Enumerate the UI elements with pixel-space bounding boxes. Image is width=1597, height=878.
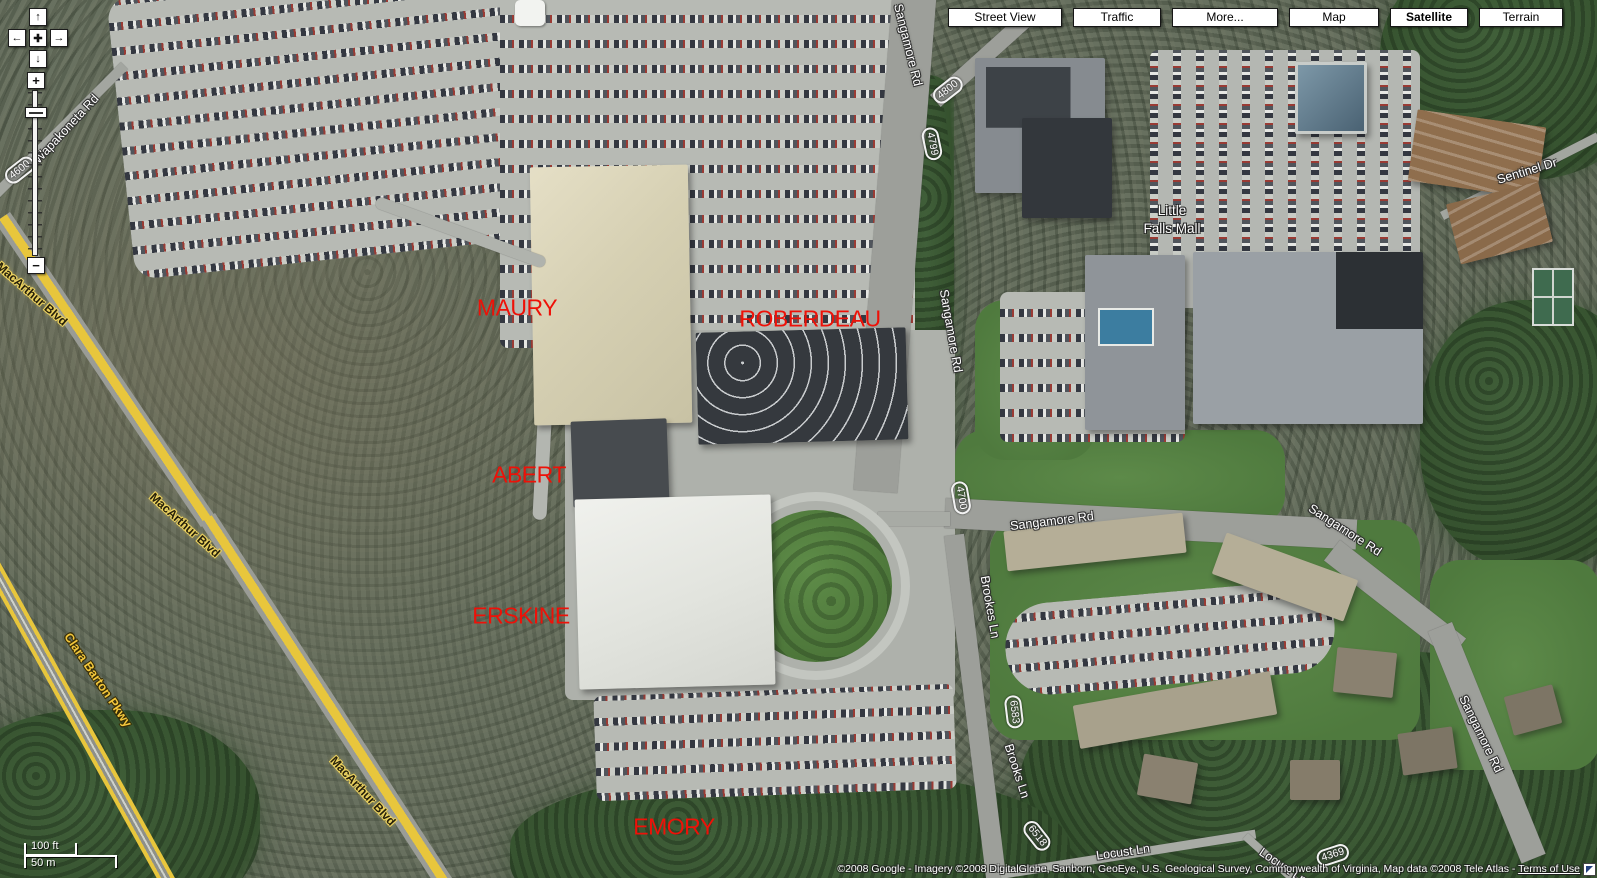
attribution: ©2008 Google - Imagery ©2008 DigitalGlob… (837, 863, 1580, 875)
building-dark-roof (696, 327, 909, 444)
map-type-toolbar: Street ViewTrafficMore...MapSatelliteTer… (948, 8, 1563, 27)
toolbar-button-terrain[interactable]: Terrain (1479, 8, 1563, 27)
building-glass (1295, 62, 1367, 134)
road-campus-entrance (878, 512, 950, 526)
zoom-out-button[interactable]: − (27, 257, 45, 274)
pan-left-button[interactable]: ← (8, 29, 26, 47)
copyright-text: ©2008 Google - Imagery ©2008 DigitalGlob… (837, 863, 1518, 875)
parking-lot-south (593, 684, 956, 801)
tennis-court (1532, 268, 1574, 326)
building-white (575, 494, 776, 689)
forest-patch (1420, 300, 1597, 570)
toolbar-button-more[interactable]: More... (1172, 8, 1278, 27)
toolbar-button-street-view[interactable]: Street View (948, 8, 1062, 27)
google-maps-satellite-view: Sangamore Rd48004799Sangamore Rd4700Sang… (0, 0, 1597, 878)
building-pool (1098, 308, 1154, 346)
zoom-in-button[interactable]: + (27, 72, 45, 89)
zoom-slider-handle[interactable] (25, 107, 47, 118)
scale-bar: 100 ft 50 m (24, 843, 124, 871)
toolbar-button-map[interactable]: Map (1289, 8, 1379, 27)
pan-right-button[interactable]: → (50, 29, 68, 47)
map-canvas[interactable]: Sangamore Rd48004799Sangamore Rd4700Sang… (0, 0, 1597, 878)
toolbar-button-satellite[interactable]: Satellite (1390, 8, 1468, 27)
building-mall-east (1193, 252, 1423, 424)
house (1290, 760, 1340, 800)
scale-metric-label: 50 m (31, 857, 55, 869)
building-small-dark (571, 418, 670, 507)
toolbar-button-traffic[interactable]: Traffic (1073, 8, 1161, 27)
building-white-canopy (515, 0, 545, 26)
pan-down-button[interactable]: ↓ (29, 50, 47, 68)
pan-center-button[interactable]: ✚ (29, 29, 47, 47)
building-mall-center (1022, 118, 1112, 218)
building-tan (530, 165, 692, 426)
terms-of-use-link[interactable]: Terms of Use (1518, 863, 1580, 875)
map-attribution-icon[interactable] (1583, 863, 1596, 876)
pan-control: ↑←✚→↓ (8, 8, 70, 70)
house (1333, 647, 1397, 698)
house (1397, 726, 1457, 775)
pan-up-button[interactable]: ↑ (29, 8, 47, 26)
scale-imperial-label: 100 ft (31, 840, 59, 852)
